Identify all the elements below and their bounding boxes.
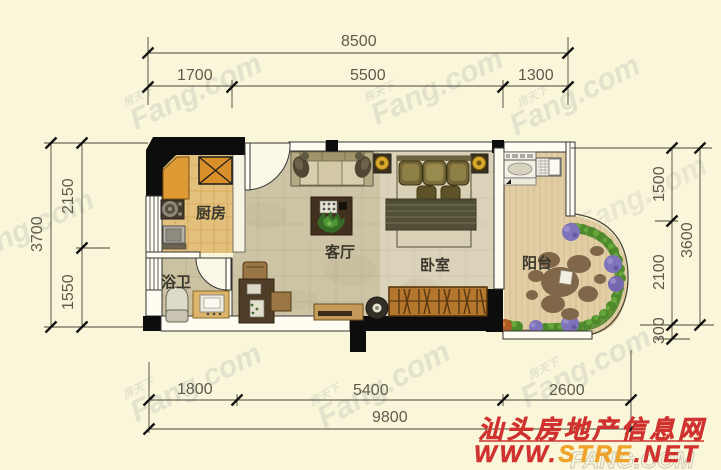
svg-text:1700: 1700: [177, 67, 213, 84]
svg-text:1300: 1300: [518, 67, 554, 84]
svg-text:9800: 9800: [372, 409, 408, 426]
svg-text:3600: 3600: [679, 222, 696, 258]
svg-text:客厅: 客厅: [324, 243, 355, 261]
svg-text:厨房: 厨房: [196, 204, 226, 222]
svg-text:卧室: 卧室: [420, 256, 450, 274]
svg-text:8500: 8500: [341, 33, 377, 50]
svg-text:3700: 3700: [29, 216, 46, 252]
svg-text:5400: 5400: [353, 382, 389, 399]
svg-text:浴卫: 浴卫: [161, 273, 191, 291]
svg-text:300: 300: [651, 317, 668, 344]
svg-text:5500: 5500: [350, 67, 386, 84]
svg-text:WWW.STRE.NET: WWW.STRE.NET: [474, 441, 699, 468]
svg-text:2600: 2600: [549, 382, 585, 399]
svg-text:1800: 1800: [177, 381, 213, 398]
svg-text:1500: 1500: [651, 166, 668, 202]
svg-text:汕头房地产信息网: 汕头房地产信息网: [478, 416, 707, 444]
svg-text:2150: 2150: [60, 178, 77, 214]
svg-text:阳台: 阳台: [522, 254, 552, 272]
svg-text:1550: 1550: [60, 274, 77, 310]
svg-text:2100: 2100: [651, 254, 668, 290]
